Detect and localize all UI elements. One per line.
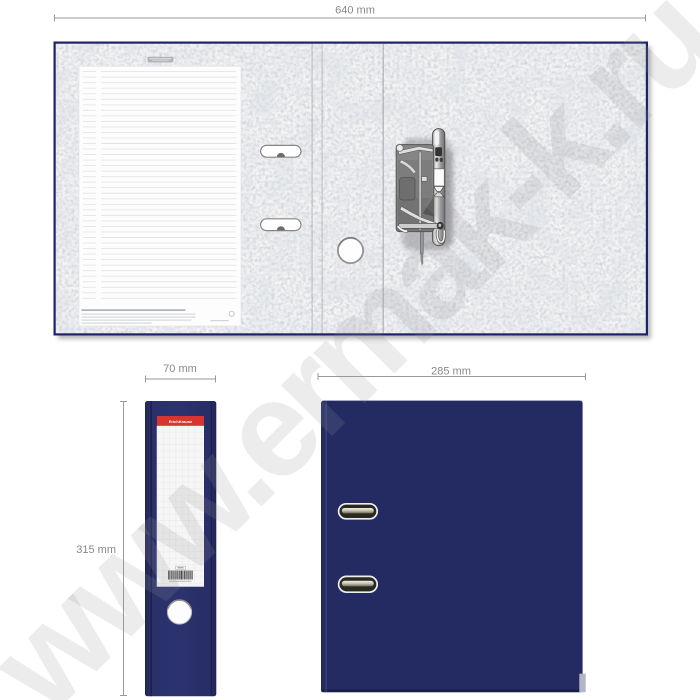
svg-text:640 mm: 640 mm [335,5,375,17]
svg-text:70 mm: 70 mm [163,363,197,375]
